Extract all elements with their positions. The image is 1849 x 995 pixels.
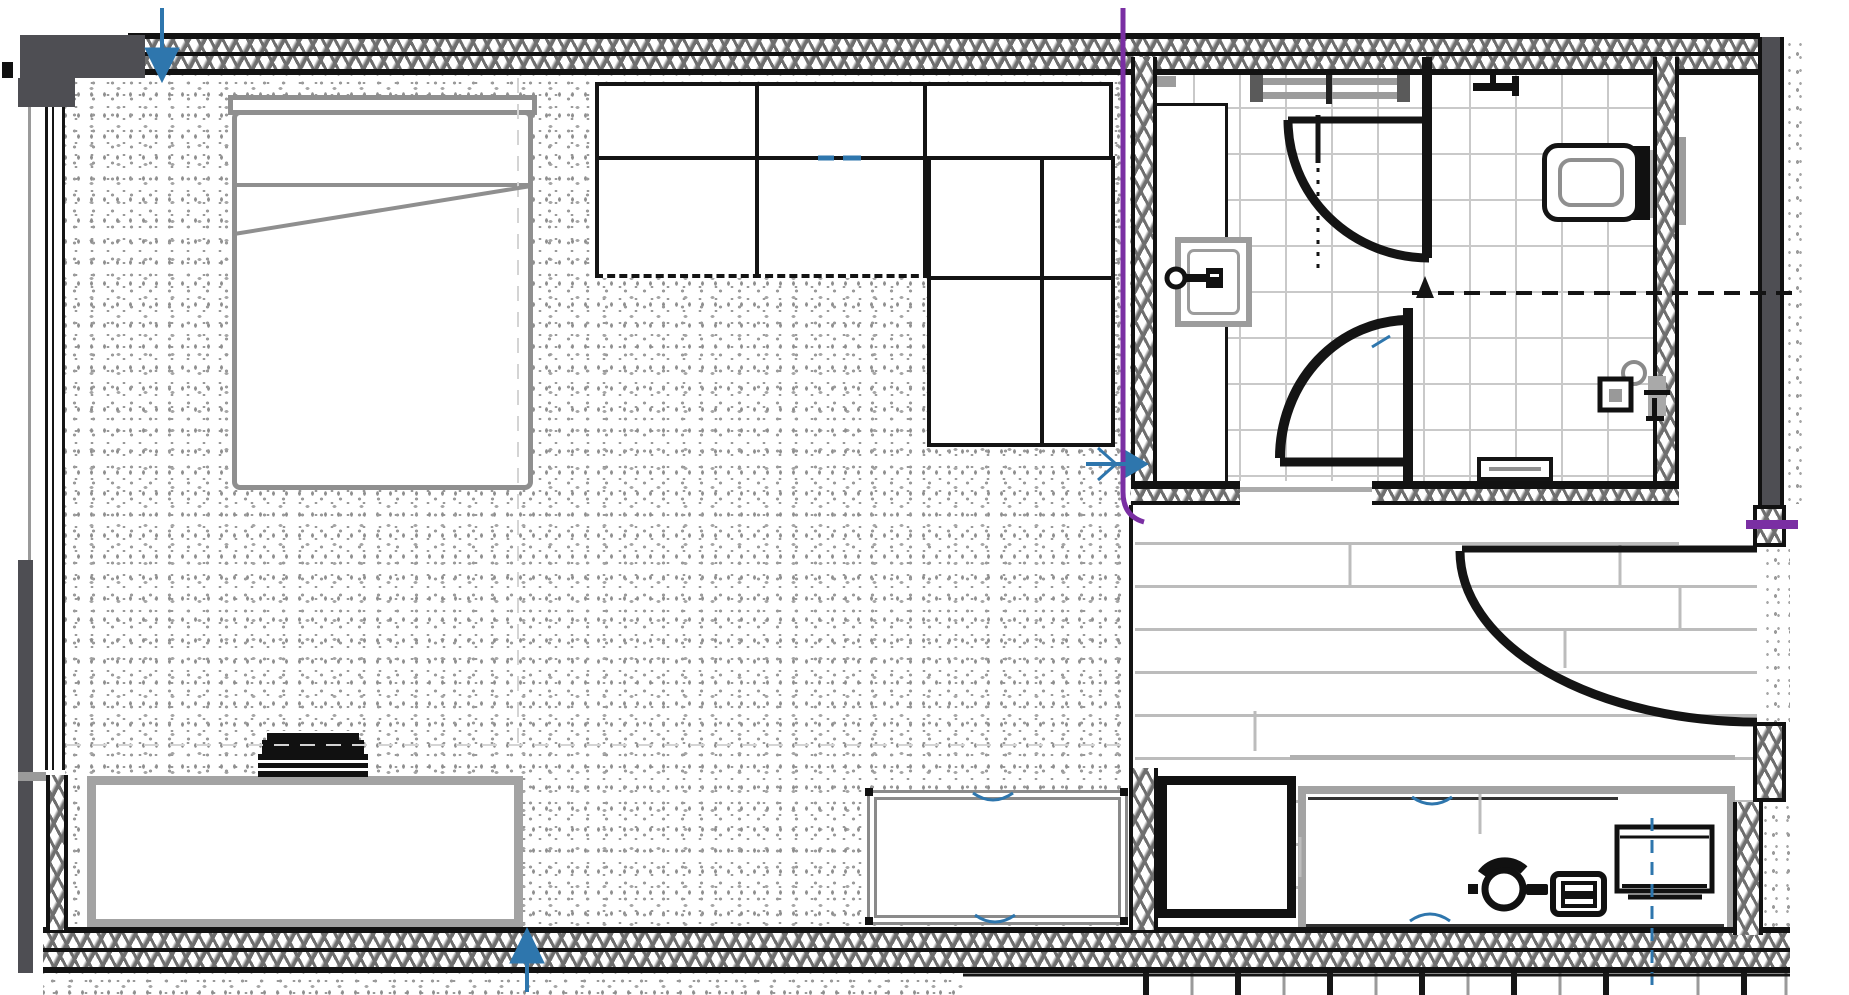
track-cap-left: [1250, 74, 1263, 102]
television: [258, 754, 368, 777]
bathroom-divider-upper: [1422, 57, 1432, 258]
tv-stripe: [258, 760, 368, 763]
balcony-railing: [963, 973, 1790, 995]
service-shaft: [1679, 57, 1757, 545]
desk-backsplash: [1290, 755, 1735, 760]
entry-door-jamb-top: [1753, 505, 1786, 547]
wall-top: [128, 33, 1760, 75]
door-threshold: [1240, 487, 1372, 492]
exterior-texture-right-bottom: [1764, 805, 1790, 928]
balcony-strip-floor: [43, 973, 963, 995]
bathroom-wall-bottom-right: [1372, 481, 1679, 505]
bed-pillow-line: [237, 183, 529, 187]
sofa-divider-2: [923, 84, 927, 276]
window-glass-line-1: [45, 107, 48, 770]
floor-plan: [0, 0, 1849, 995]
sofa-chaise-divider-v: [1040, 158, 1044, 445]
tv-stripe2: [258, 768, 368, 771]
left-exterior-strip: [18, 560, 33, 973]
track-mid-tick: [1326, 72, 1332, 104]
column-notch: [2, 62, 13, 78]
window-glass-line-2: [52, 107, 54, 770]
bathroom-wall-left: [1131, 57, 1157, 505]
wall-bottom: [43, 927, 1790, 973]
credenza-dresser: [87, 776, 523, 928]
desk-inner-top-line: [1308, 797, 1618, 800]
track-cap-right: [1397, 74, 1410, 102]
wall-left-lower: [46, 775, 68, 930]
bathroom-wall-bottom-left: [1131, 481, 1240, 505]
exterior-texture-right-top: [1788, 42, 1802, 504]
stub-wall: [1129, 768, 1158, 930]
tv-top: [267, 731, 359, 740]
work-desk: [1298, 786, 1735, 935]
table-corner-dot-tr: [1120, 788, 1128, 796]
right-wall-column: [1758, 37, 1784, 505]
toilet-seat: [1558, 158, 1624, 207]
entry-door-jamb-bottom: [1753, 722, 1786, 802]
sofa-chaise: [927, 156, 1115, 447]
bath-mat-line: [1489, 467, 1541, 471]
window-sill: [18, 772, 46, 781]
window-inner-line: [62, 107, 65, 770]
column-top-left: [20, 35, 145, 78]
table-corner-dot-tl: [865, 788, 873, 796]
wash-basin-inner: [1187, 249, 1240, 315]
exterior-texture-right-mid: [1766, 548, 1790, 722]
sofa-divider-1: [755, 84, 759, 276]
tv-mid: [262, 740, 364, 754]
bathroom-wall-right: [1653, 57, 1679, 505]
right-wall-lower: [1733, 802, 1763, 935]
luggage-rack: [1158, 776, 1296, 918]
double-bed: [232, 110, 533, 490]
sofa-seat-row: [595, 156, 931, 278]
sofa-chaise-divider-h: [929, 276, 1113, 280]
floor-boundary-line: [1129, 505, 1133, 770]
column-top-left-2: [18, 78, 75, 107]
coffee-table-inner: [874, 797, 1121, 918]
table-corner-dot-br: [1120, 917, 1128, 925]
bathroom-divider-lower: [1403, 308, 1413, 481]
table-corner-dot-bl: [865, 917, 873, 925]
sofa-back-row: [595, 82, 1113, 160]
